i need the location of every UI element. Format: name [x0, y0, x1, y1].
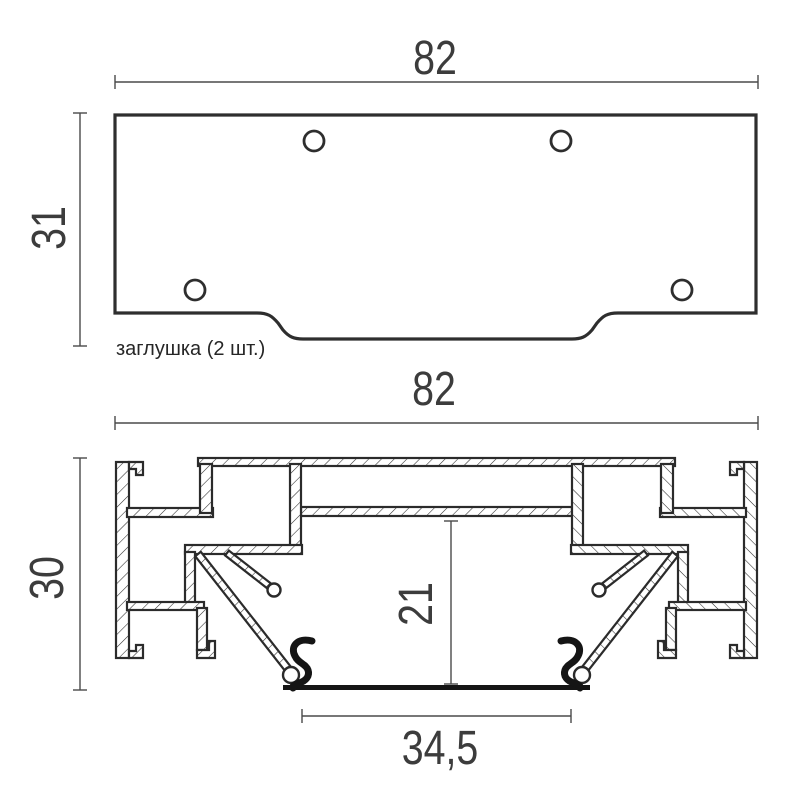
- plate-outline: [115, 115, 756, 339]
- profile-left-half: [116, 462, 312, 688]
- screw-hole: [551, 131, 571, 151]
- dim-label-channel-width: 34,5: [402, 725, 479, 773]
- profile-right-half: [561, 462, 757, 688]
- dim-label-plate-width: 82: [413, 35, 457, 83]
- middle-wall: [301, 507, 572, 516]
- bottom-face: [283, 685, 590, 690]
- drawing-geometry: [0, 0, 800, 800]
- top-wall: [198, 458, 675, 466]
- screw-hole: [185, 280, 205, 300]
- dim-label-plate-height: 31: [26, 206, 74, 250]
- plate-caption: заглушка (2 шт.): [116, 338, 265, 360]
- dim-label-section-height: 30: [24, 556, 72, 600]
- screw-hole: [672, 280, 692, 300]
- screw-hole: [304, 131, 324, 151]
- dim-label-channel-height: 21: [393, 582, 441, 626]
- end-cap-plate-view: [115, 115, 756, 339]
- dim-label-section-width: 82: [412, 366, 456, 414]
- profile-cross-section-view: [116, 458, 757, 690]
- technical-drawing: 82 31 заглушка (2 шт.) 82 30 21 34,5: [0, 0, 800, 800]
